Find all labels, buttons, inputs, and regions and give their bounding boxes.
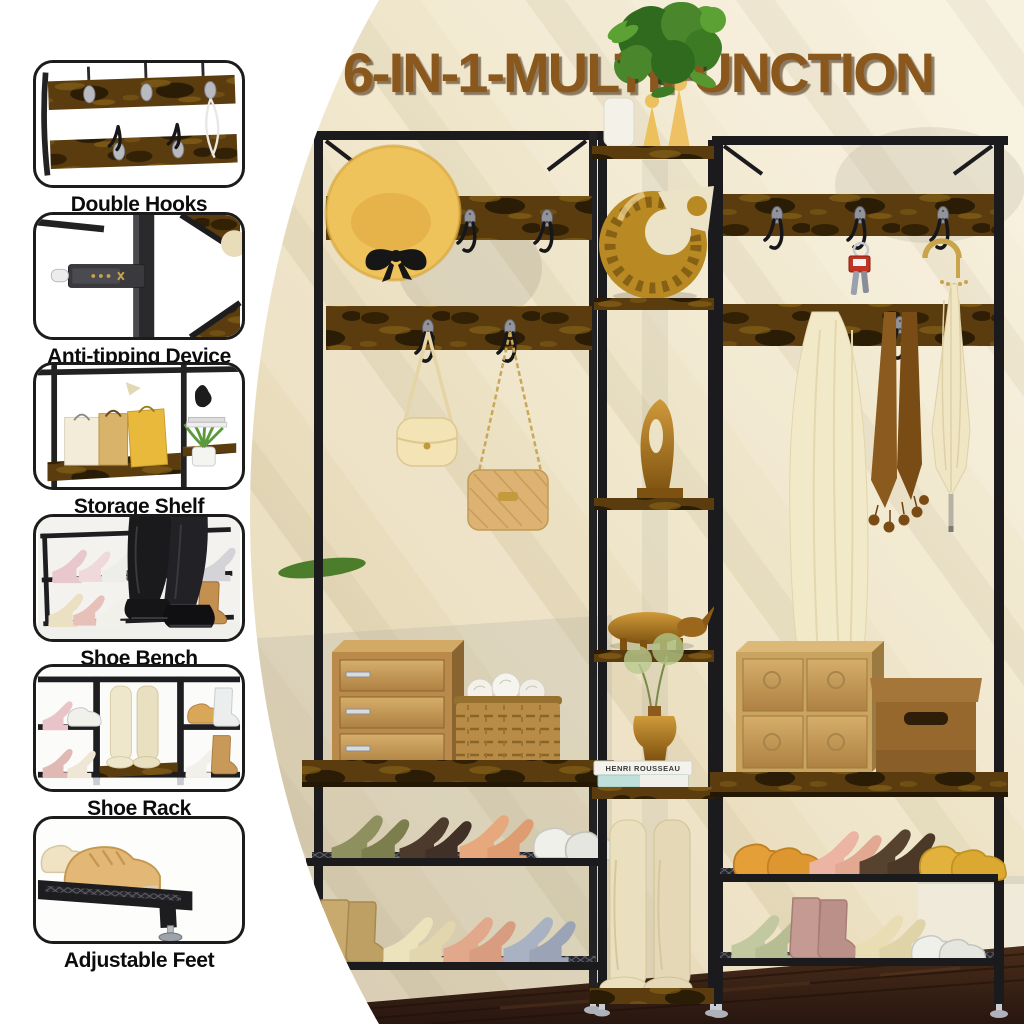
feature-shoe-bench: Shoe Bench <box>33 514 245 671</box>
feature-shoe-rack: Shoe Rack <box>33 664 245 821</box>
feature-label: Adjustable Feet <box>33 949 245 973</box>
shoe-bench-image <box>36 517 242 639</box>
drawer-chest-3 <box>332 640 464 770</box>
feature-anti-tipping: Anti-tipping Device <box>33 212 245 369</box>
feature-sidebar: Double Hooks <box>0 0 270 1024</box>
thumb-storage-shelf <box>33 362 245 490</box>
sun-hat <box>326 146 460 282</box>
thumb-adjustable-feet <box>33 816 245 944</box>
book-spine-text: HENRI ROUSSEAU <box>606 764 681 773</box>
adjustable-feet-image <box>36 819 242 941</box>
tall-boots <box>600 820 692 999</box>
thumb-shoe-rack <box>33 664 245 792</box>
anti-tipping-image <box>36 215 242 337</box>
feature-storage-shelf: Storage Shelf <box>33 362 245 519</box>
thumb-anti-tipping <box>33 212 245 340</box>
double-hooks-image <box>36 63 242 185</box>
seated-person <box>125 517 215 628</box>
drawer-chest-4 <box>736 641 884 772</box>
feature-double-hooks: Double Hooks <box>33 60 245 217</box>
hook-rail-bottom <box>326 306 592 350</box>
storage-cube <box>870 678 982 778</box>
product-infographic: HENRI ROUSSEAU <box>0 0 1024 1024</box>
hanging-blanket <box>790 312 868 696</box>
thumb-shoe-bench <box>33 514 245 642</box>
thumb-double-hooks <box>33 60 245 188</box>
shoe-rack-image <box>36 667 242 789</box>
feature-adjustable-feet: Adjustable Feet <box>33 816 245 973</box>
storage-shelf-image <box>36 365 242 487</box>
handle-slot <box>904 712 948 725</box>
white-vase <box>604 98 634 146</box>
page-title: 6-IN-1-MULTIFUNCTION <box>252 40 1024 105</box>
shopping-bags <box>65 407 168 467</box>
